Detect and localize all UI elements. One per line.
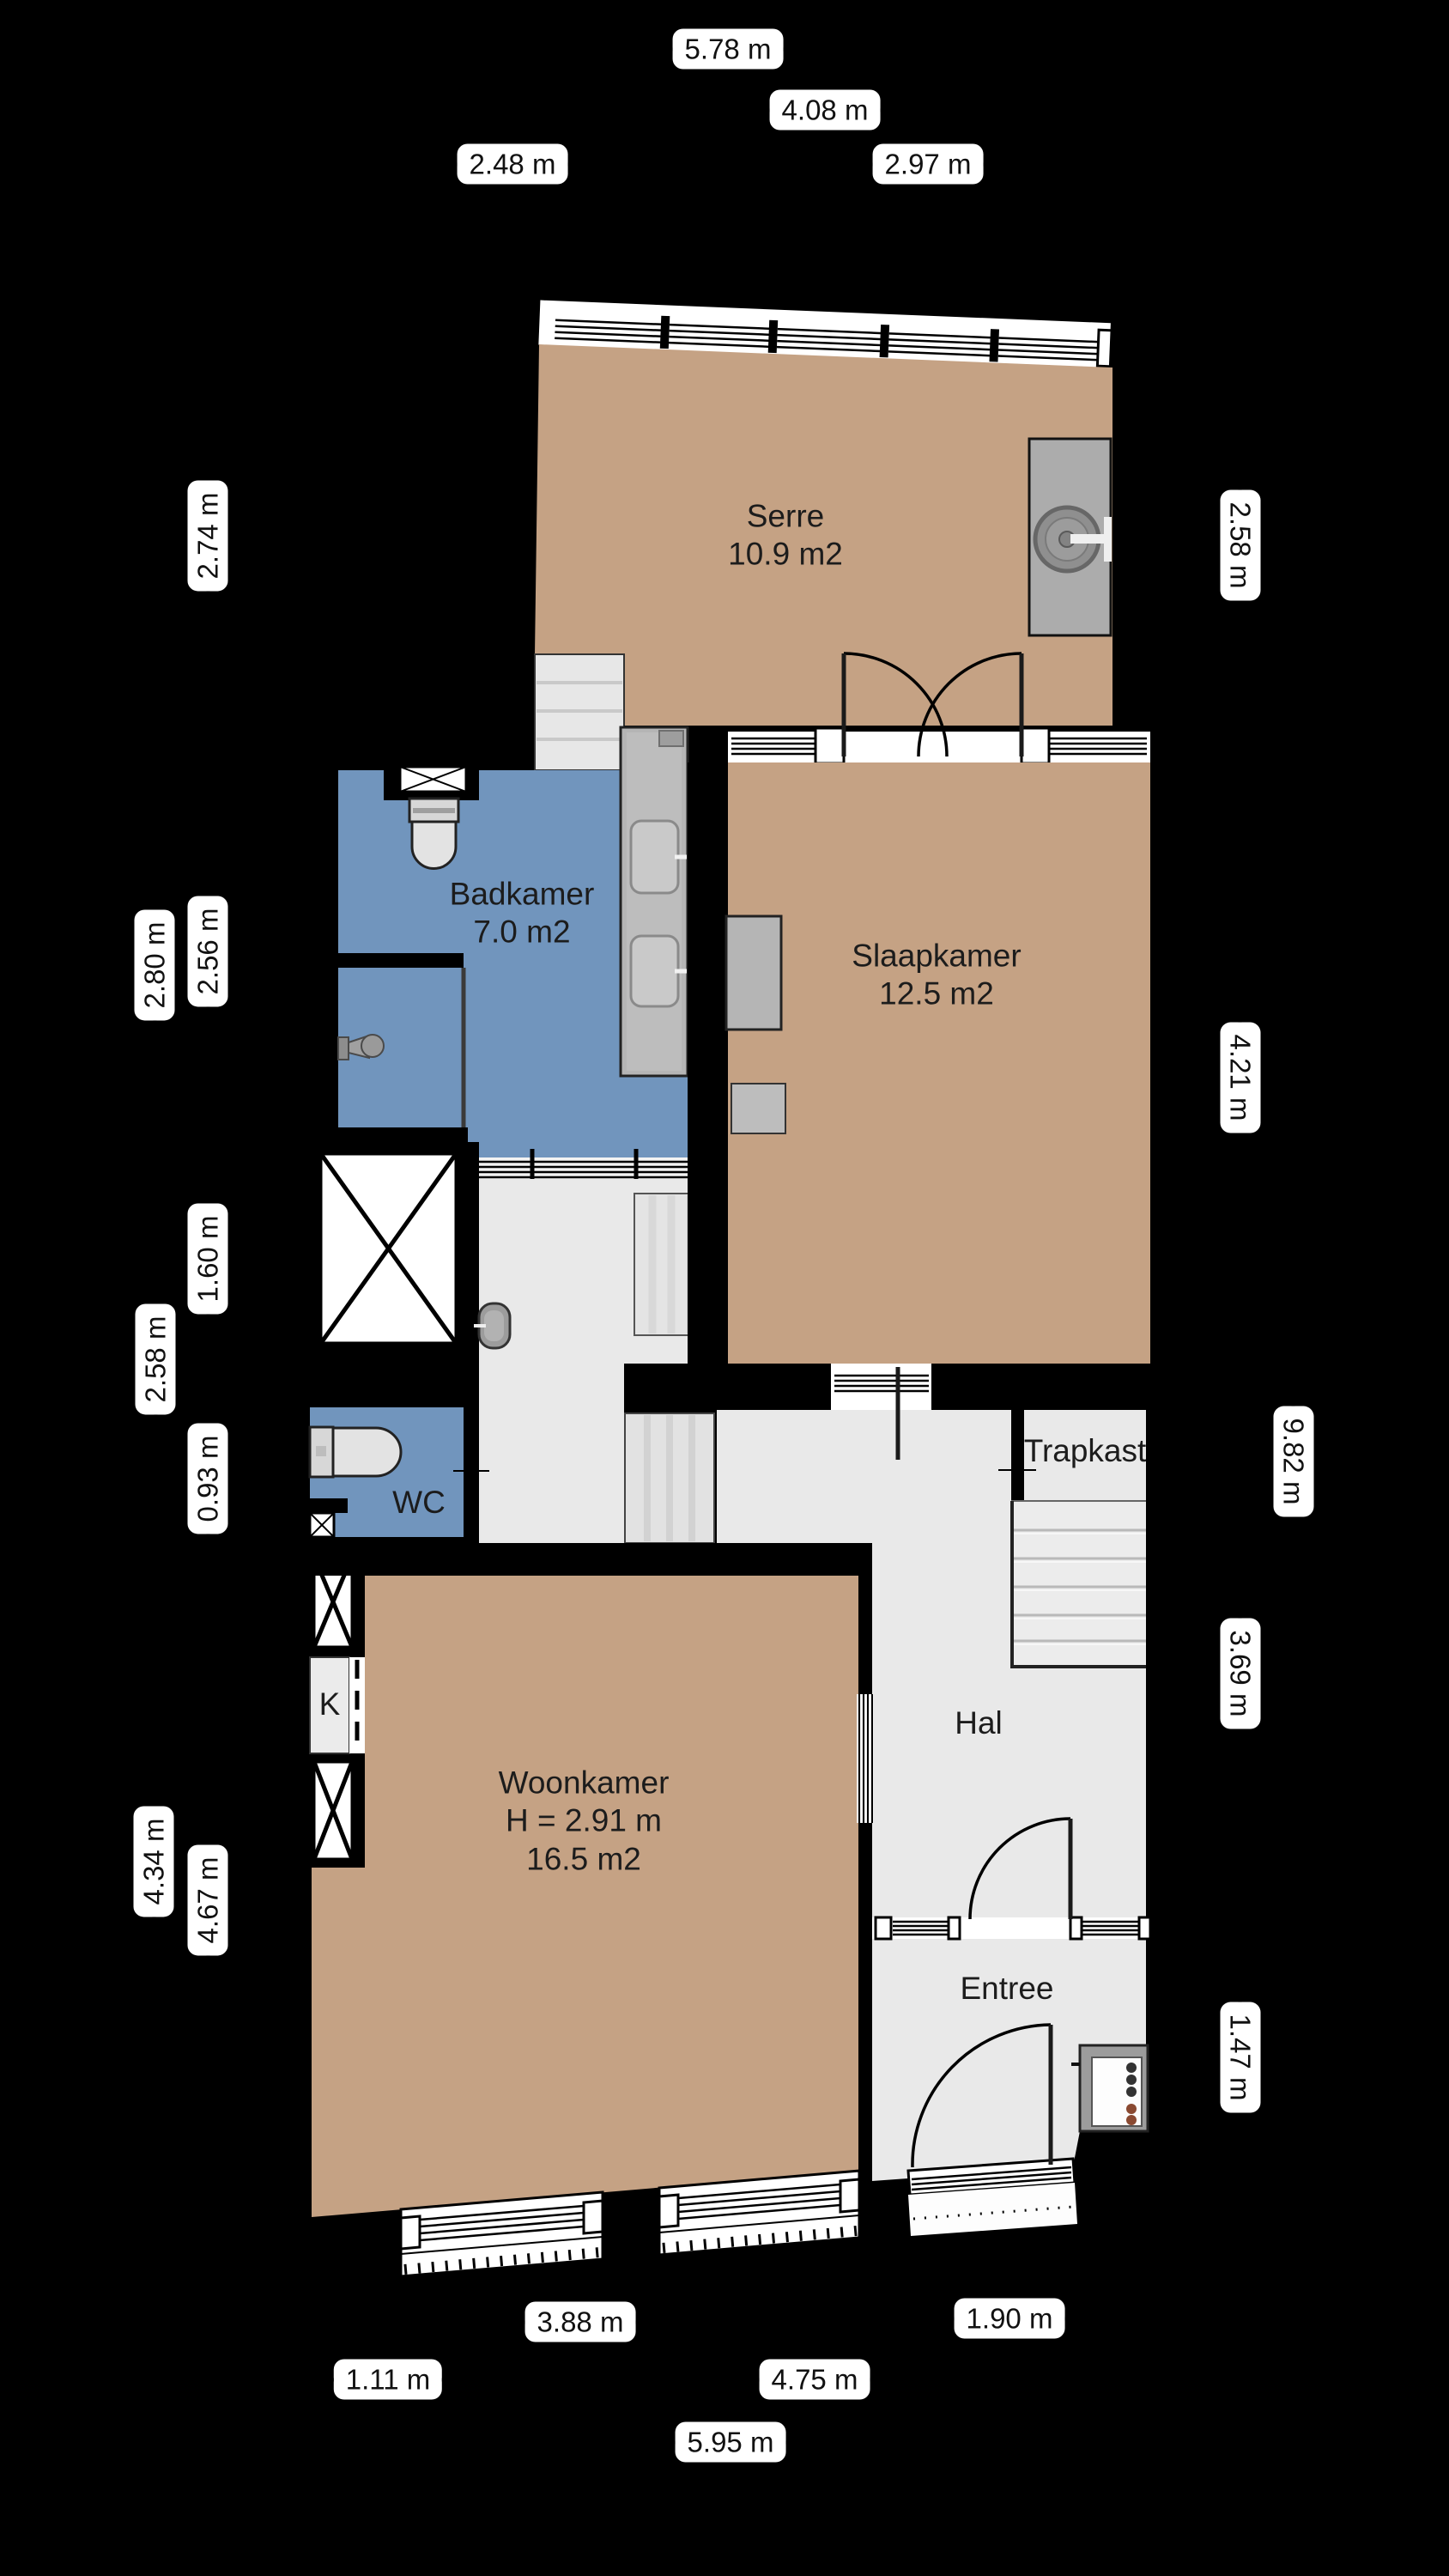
dimension-label: 1.47 m [1221,2002,1261,2113]
room-area: 16.5 m2 [499,1840,670,1878]
room-label: WC [392,1484,446,1522]
room-name: K [319,1686,341,1723]
dimension-label: 3.69 m [1221,1619,1261,1729]
room-name: Slaapkamer [852,938,1021,975]
dimension-label: 2.56 m [188,896,228,1007]
dimension-label: 4.34 m [134,1807,174,1917]
room-name: Badkamer [450,876,595,914]
dimension-label: 2.58 m [136,1304,176,1415]
dimension-label: 4.75 m [760,2360,870,2400]
dimension-label: 2.74 m [188,481,228,592]
room-label: Hal [955,1704,1003,1742]
room-label: Trapkast [1024,1432,1147,1470]
room-label: Entree [960,1970,1053,2008]
room-name: Trapkast [1024,1432,1147,1470]
dimension-label: 4.21 m [1221,1023,1261,1133]
dimension-label: 4.67 m [188,1845,228,1956]
room-label: Serre 10.9 m2 [728,498,843,574]
dimension-label: 5.78 m [673,29,784,70]
dimension-label: 1.60 m [188,1204,228,1315]
floorplan-page: 5.78 m4.08 m2.48 m2.97 m2.74 m2.80 m2.56… [0,0,1449,2576]
room-area: 10.9 m2 [728,536,843,574]
dimension-label: 2.58 m [1221,490,1261,601]
room-name: Entree [960,1970,1053,2008]
dimension-label: 9.82 m [1274,1406,1314,1517]
room-name: Serre [728,498,843,536]
dimension-label: 0.93 m [188,1424,228,1534]
room-name: WC [392,1484,446,1522]
room-area: 7.0 m2 [450,914,595,951]
room-name: Woonkamer [499,1764,670,1801]
room-label: Badkamer 7.0 m2 [450,876,595,952]
room-label: K [319,1686,341,1723]
room-height: H = 2.91 m [499,1802,670,1840]
dimension-label: 2.80 m [135,910,175,1021]
room-label: Woonkamer H = 2.91 m 16.5 m2 [499,1764,670,1878]
room-label: Slaapkamer 12.5 m2 [852,938,1021,1014]
room-area: 12.5 m2 [852,975,1021,1013]
dimension-label: 3.88 m [525,2302,636,2342]
dimension-label: 2.48 m [458,144,568,185]
dimension-label: 2.97 m [873,144,984,185]
dimension-label: 5.95 m [676,2422,786,2463]
dimension-label: 1.90 m [955,2299,1065,2339]
dimension-label: 1.11 m [334,2360,442,2400]
room-name: Hal [955,1704,1003,1742]
label-layer: 5.78 m4.08 m2.48 m2.97 m2.74 m2.80 m2.56… [0,0,1449,2576]
dimension-label: 4.08 m [770,90,881,131]
